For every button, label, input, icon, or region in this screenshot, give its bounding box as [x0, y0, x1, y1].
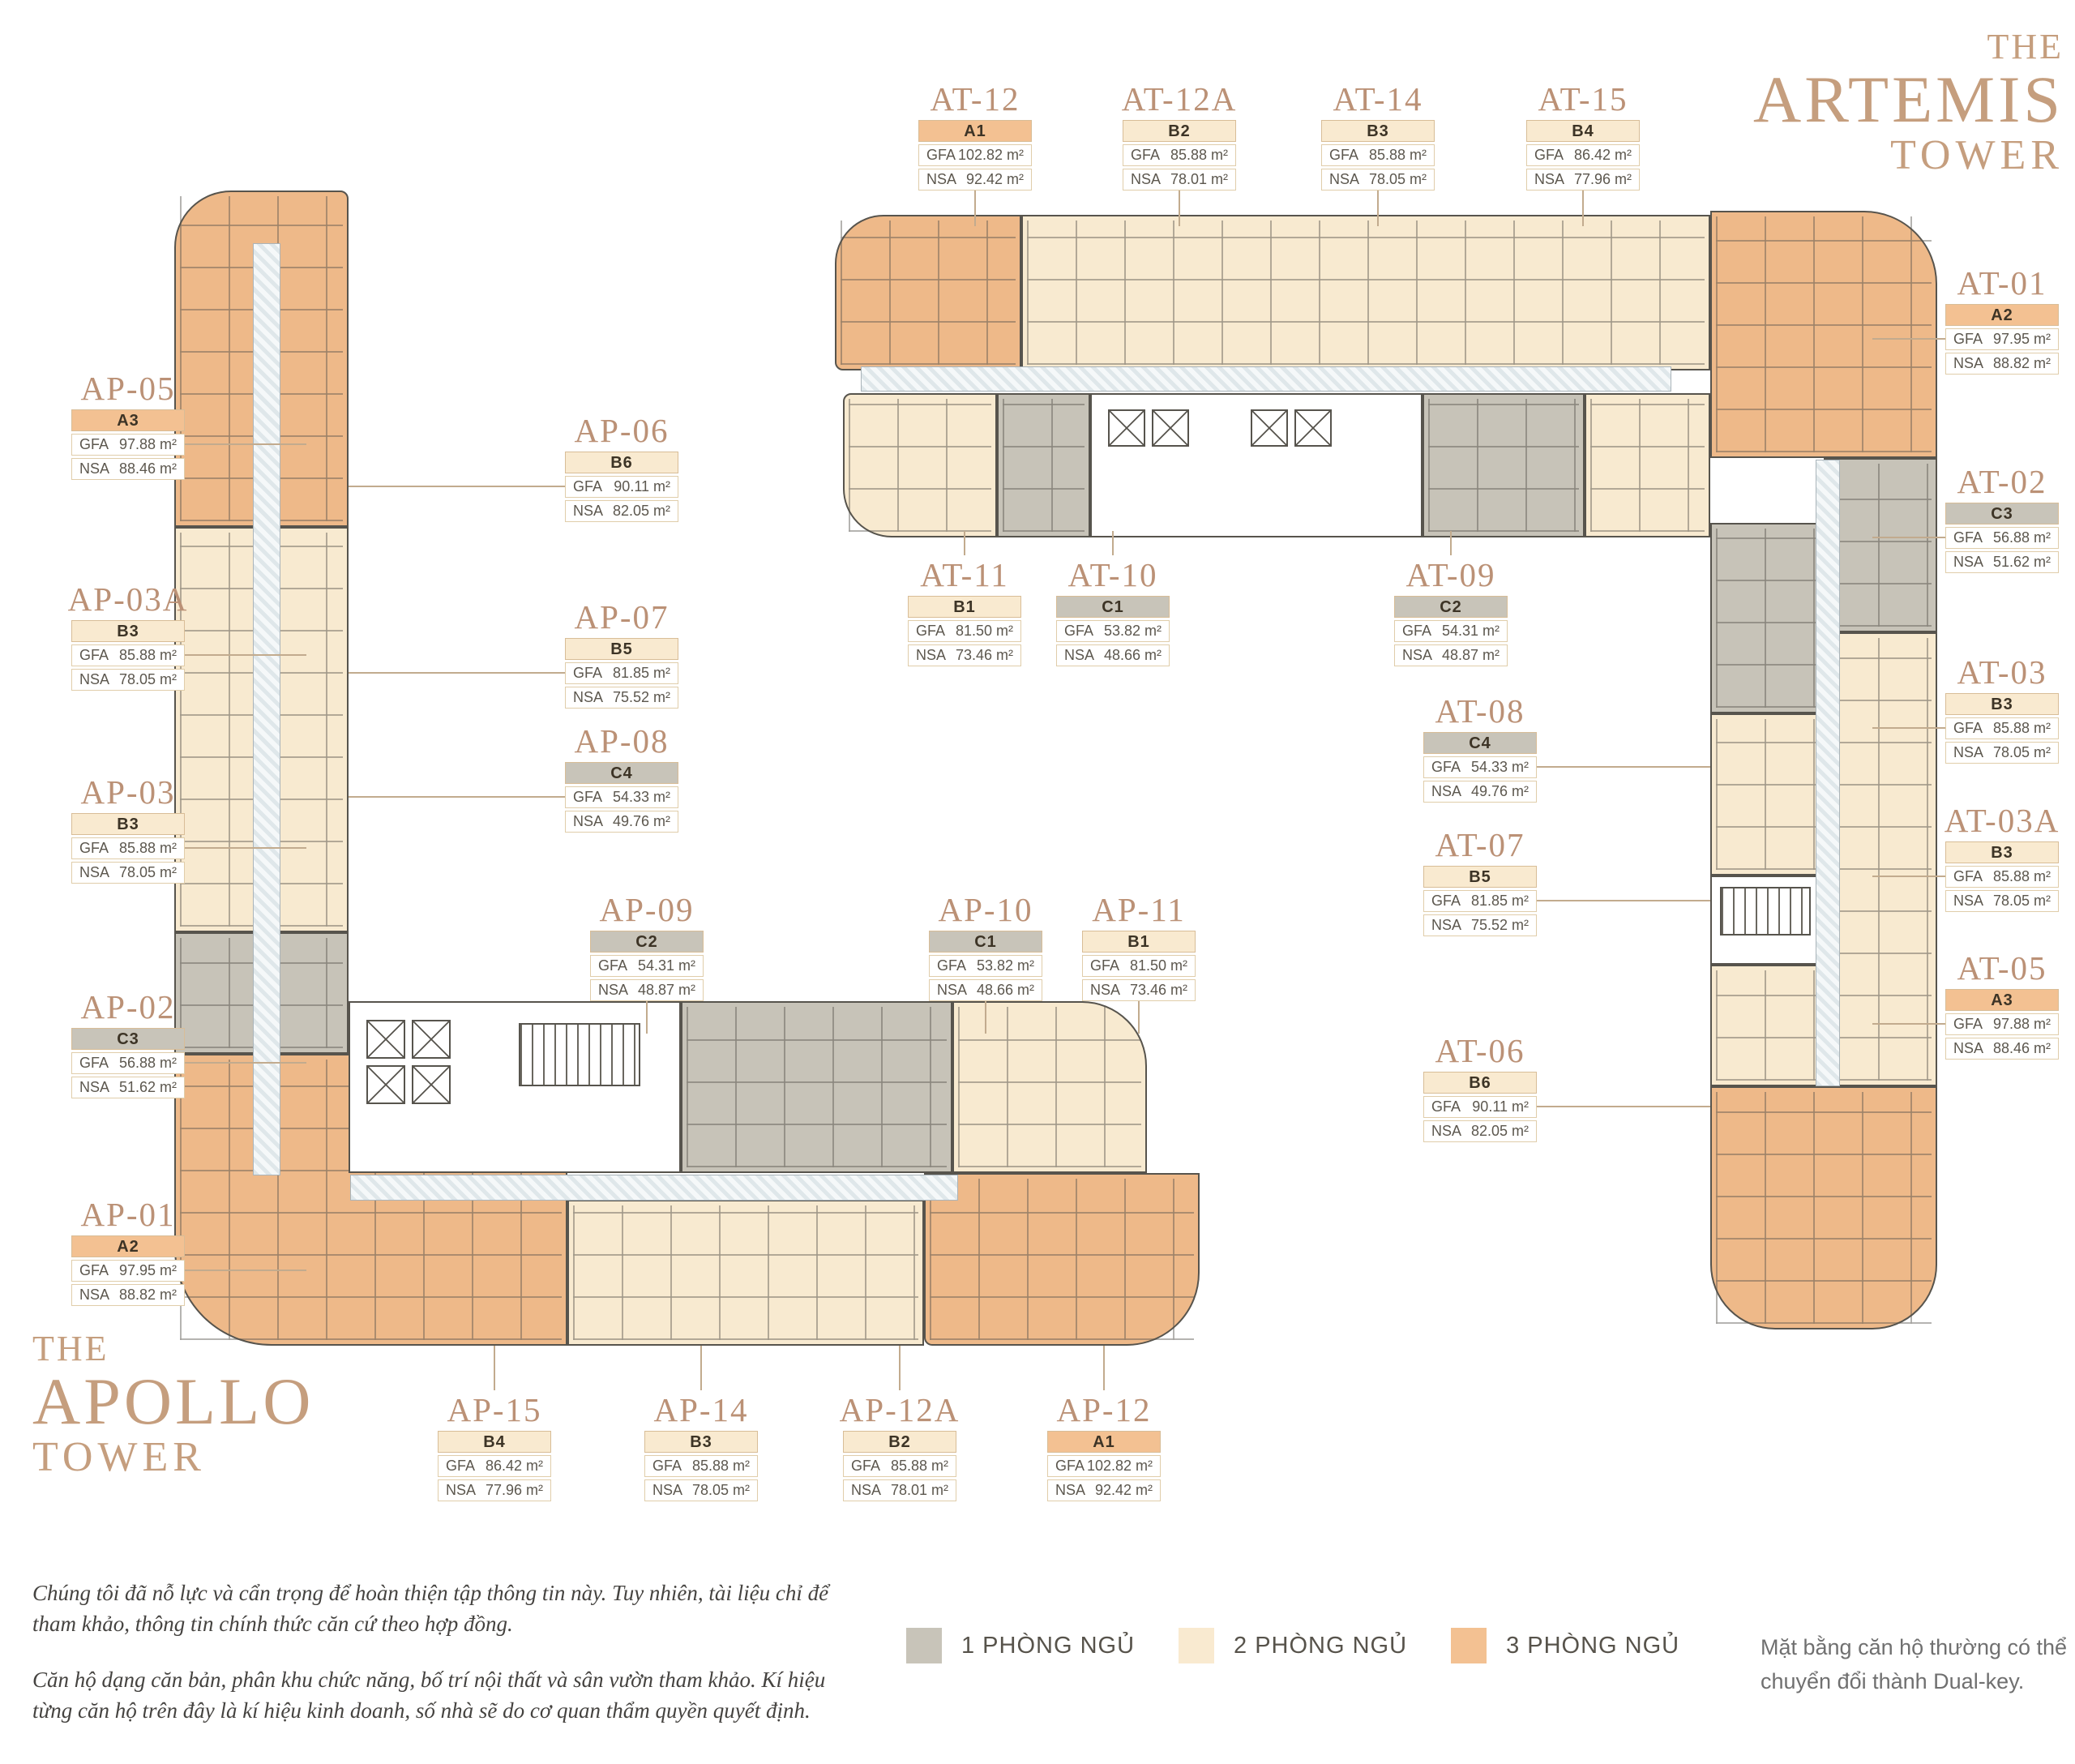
nsa-label: NSA — [573, 689, 603, 706]
unit-type-badge: B6 — [1423, 1072, 1537, 1094]
unit-callout-AP-02: AP-02C3GFA56.88 m²NSA51.62 m² — [71, 1028, 185, 1098]
gfa-label: GFA — [79, 436, 109, 453]
gfa-value: 102.82 m² — [1087, 1458, 1153, 1475]
unit-gfa-row: GFA97.95 m² — [1945, 328, 2059, 350]
unit-id: AP-12A — [840, 1390, 960, 1429]
unit-type-badge: A1 — [1047, 1431, 1161, 1453]
unit-id: AT-14 — [1333, 79, 1423, 118]
gfa-label: GFA — [937, 957, 966, 974]
nsa-label: NSA — [937, 982, 967, 999]
unit-id: AT-12A — [1122, 79, 1238, 118]
plan-block-3br — [1710, 211, 1937, 458]
nsa-value: 48.87 m² — [638, 982, 695, 999]
unit-nsa-row: NSA77.96 m² — [1526, 169, 1640, 191]
gfa-label: GFA — [916, 623, 945, 640]
artemis-title-the: THE — [1753, 29, 2064, 66]
legend-label: 3 PHÒNG NGỦ — [1506, 1633, 1679, 1659]
unit-gfa-row: GFA102.82 m² — [918, 144, 1032, 166]
gfa-value: 81.85 m² — [1471, 893, 1529, 910]
nsa-value: 49.76 m² — [1471, 783, 1529, 800]
gfa-value: 53.82 m² — [1104, 623, 1162, 640]
nsa-label: NSA — [1953, 744, 1983, 761]
unit-callout-AT-14: AT-14B3GFA85.88 m²NSA78.05 m² — [1321, 120, 1435, 191]
leader-line-AT-06 — [1537, 1106, 1710, 1107]
unit-gfa-row: GFA85.88 m² — [1945, 866, 2059, 888]
gfa-value: 54.31 m² — [638, 957, 695, 974]
nsa-value: 88.46 m² — [1993, 1040, 2051, 1057]
unit-nsa-row: NSA78.05 m² — [1945, 890, 2059, 912]
nsa-label: NSA — [79, 671, 109, 688]
unit-type-badge: B5 — [565, 638, 678, 660]
unit-callout-AT-06: AT-06B6GFA90.11 m²NSA82.05 m² — [1423, 1072, 1537, 1142]
nsa-value: 82.05 m² — [613, 503, 670, 520]
unit-nsa-row: NSA73.46 m² — [1082, 979, 1196, 1001]
unit-nsa-row: NSA78.05 m² — [71, 669, 185, 691]
plan-block-2br — [567, 1200, 924, 1346]
unit-gfa-row: GFA54.31 m² — [590, 955, 704, 977]
leader-line-AT-12A — [1179, 191, 1180, 226]
unit-gfa-row: GFA81.50 m² — [908, 620, 1021, 642]
elevator-shaft — [366, 1065, 405, 1104]
unit-callout-AP-01: AP-01A2GFA97.95 m²NSA88.82 m² — [71, 1235, 185, 1306]
nsa-label: NSA — [573, 503, 603, 520]
unit-gfa-row: GFA56.88 m² — [1945, 527, 2059, 549]
gfa-label: GFA — [573, 478, 602, 495]
unit-callout-AT-02: AT-02C3GFA56.88 m²NSA51.62 m² — [1945, 503, 2059, 573]
nsa-value: 78.05 m² — [1993, 744, 2051, 761]
unit-id: AT-08 — [1435, 691, 1525, 730]
unit-callout-AP-03: AP-03B3GFA85.88 m²NSA78.05 m² — [71, 813, 185, 884]
unit-id: AP-09 — [599, 890, 694, 929]
leader-line-AP-09 — [646, 1001, 648, 1034]
unit-nsa-row: NSA48.66 m² — [929, 979, 1042, 1001]
nsa-value: 78.01 m² — [891, 1482, 948, 1499]
legend-item-1br: 1 PHÒNG NGỦ — [906, 1628, 1135, 1663]
unit-nsa-row: NSA88.46 m² — [1945, 1038, 2059, 1060]
unit-type-badge: C2 — [590, 931, 704, 953]
leader-line-AP-02 — [185, 1062, 306, 1064]
unit-type-badge: B1 — [1082, 931, 1196, 953]
unit-id: AP-07 — [574, 597, 669, 636]
unit-nsa-row: NSA92.42 m² — [1047, 1479, 1161, 1501]
disclaimer-text: Chúng tôi đã nỗ lực và cẩn trọng để hoàn… — [32, 1578, 843, 1750]
gfa-value: 53.82 m² — [977, 957, 1034, 974]
legend-item-3br: 3 PHÒNG NGỦ — [1451, 1628, 1679, 1663]
unit-nsa-row: NSA78.05 m² — [1321, 169, 1435, 191]
gfa-value: 97.95 m² — [1993, 331, 2051, 348]
unit-nsa-row: NSA78.05 m² — [71, 862, 185, 884]
unit-id: AP-03A — [68, 580, 189, 619]
unit-id: AT-06 — [1435, 1031, 1525, 1070]
unit-id: AP-11 — [1092, 890, 1186, 929]
leader-line-AT-07 — [1537, 900, 1710, 901]
unit-id: AP-02 — [80, 987, 175, 1026]
nsa-value: 92.42 m² — [966, 171, 1024, 188]
unit-callout-AT-05: AT-05A3GFA97.88 m²NSA88.46 m² — [1945, 989, 2059, 1060]
plan-block-2br — [1710, 965, 1824, 1086]
gfa-value: 56.88 m² — [1993, 529, 2051, 546]
gfa-label: GFA — [1431, 1098, 1461, 1115]
gfa-label: GFA — [1090, 957, 1119, 974]
gfa-value: 81.50 m² — [1130, 957, 1187, 974]
unit-callout-AP-10: AP-10C1GFA53.82 m²NSA48.66 m² — [929, 931, 1042, 1001]
gfa-value: 97.95 m² — [119, 1262, 177, 1279]
unit-nsa-row: NSA51.62 m² — [1945, 551, 2059, 573]
plan-block-1br — [1710, 523, 1824, 713]
gfa-value: 54.33 m² — [1471, 759, 1529, 776]
unit-callout-AT-03: AT-03B3GFA85.88 m²NSA78.05 m² — [1945, 693, 2059, 764]
nsa-value: 75.52 m² — [1471, 917, 1529, 934]
gfa-value: 81.50 m² — [956, 623, 1013, 640]
unit-nsa-row: NSA75.52 m² — [565, 687, 678, 709]
leader-line-AT-11 — [964, 531, 965, 555]
gfa-label: GFA — [1953, 529, 1983, 546]
legend-swatch — [906, 1628, 942, 1663]
plan-block-2br — [1021, 215, 1710, 370]
gfa-label: GFA — [1431, 759, 1461, 776]
nsa-label: NSA — [1953, 1040, 1983, 1057]
gfa-label: GFA — [652, 1458, 682, 1475]
nsa-label: NSA — [446, 1482, 476, 1499]
unit-id: AP-10 — [938, 890, 1033, 929]
nsa-label: NSA — [573, 813, 603, 830]
corridor — [253, 243, 280, 1175]
unit-callout-AP-11: AP-11B1GFA81.50 m²NSA73.46 m² — [1082, 931, 1196, 1001]
unit-gfa-row: GFA86.42 m² — [1526, 144, 1640, 166]
unit-id: AP-15 — [447, 1390, 541, 1429]
gfa-value: 85.88 m² — [1993, 720, 2051, 737]
unit-type-badge: B5 — [1423, 866, 1537, 888]
legend-swatch — [1179, 1628, 1214, 1663]
unit-type-badge: C1 — [929, 931, 1042, 953]
leader-line-AT-12 — [974, 191, 976, 226]
unit-gfa-row: GFA81.85 m² — [565, 662, 678, 684]
stairs — [1720, 887, 1811, 936]
unit-gfa-row: GFA54.31 m² — [1394, 620, 1508, 642]
corridor — [1816, 460, 1840, 1086]
leader-line-AP-05 — [185, 443, 306, 445]
plan-block-3br — [835, 215, 1021, 370]
nsa-value: 48.66 m² — [1104, 647, 1162, 664]
stairs — [519, 1023, 640, 1086]
unit-nsa-row: NSA48.87 m² — [1394, 644, 1508, 666]
plan-block-1br — [681, 1001, 952, 1173]
unit-callout-AT-07: AT-07B5GFA81.85 m²NSA75.52 m² — [1423, 866, 1537, 936]
unit-type-badge: B1 — [908, 596, 1021, 618]
nsa-label: NSA — [851, 1482, 881, 1499]
dualkey-note: Mặt bằng căn hộ thường có thể chuyển đổi… — [1761, 1631, 2075, 1699]
gfa-label: GFA — [1431, 893, 1461, 910]
nsa-label: NSA — [1953, 554, 1983, 571]
gfa-label: GFA — [1953, 868, 1983, 885]
unit-nsa-row: NSA88.82 m² — [1945, 353, 2059, 375]
unit-callout-AT-15: AT-15B4GFA86.42 m²NSA77.96 m² — [1526, 120, 1640, 191]
nsa-value: 82.05 m² — [1471, 1123, 1529, 1140]
unit-gfa-row: GFA86.42 m² — [438, 1455, 551, 1477]
unit-callout-AP-09: AP-09C2GFA54.31 m²NSA48.87 m² — [590, 931, 704, 1001]
gfa-value: 54.33 m² — [613, 789, 670, 806]
artemis-tower-title: THE ARTEMIS TOWER — [1753, 29, 2064, 177]
unit-id: AP-01 — [80, 1195, 175, 1234]
nsa-value: 49.76 m² — [613, 813, 670, 830]
unit-type-badge: A2 — [1945, 304, 2059, 326]
nsa-value: 77.96 m² — [486, 1482, 543, 1499]
gfa-label: GFA — [79, 840, 109, 857]
leader-line-AP-14 — [700, 1346, 702, 1390]
gfa-label: GFA — [851, 1458, 880, 1475]
unit-callout-AT-10: AT-10C1GFA53.82 m²NSA48.66 m² — [1056, 596, 1170, 666]
gfa-label: GFA — [573, 665, 602, 682]
unit-type-badge: B4 — [438, 1431, 551, 1453]
unit-type-badge: B3 — [71, 813, 185, 835]
unit-gfa-row: GFA85.88 m² — [71, 644, 185, 666]
unit-gfa-row: GFA85.88 m² — [71, 837, 185, 859]
nsa-label: NSA — [79, 1079, 109, 1096]
unit-callout-AT-01: AT-01A2GFA97.95 m²NSA88.82 m² — [1945, 304, 2059, 375]
nsa-label: NSA — [1431, 1123, 1461, 1140]
leader-line-AP-03A — [185, 654, 306, 656]
unit-id: AT-11 — [920, 555, 1008, 594]
gfa-value: 97.88 m² — [1993, 1016, 2051, 1033]
plan-block-3br — [1710, 1086, 1937, 1329]
unit-id: AP-03 — [80, 773, 175, 811]
leader-line-AP-10 — [985, 1001, 986, 1034]
unit-callout-AT-03A: AT-03AB3GFA85.88 m²NSA78.05 m² — [1945, 841, 2059, 912]
plan-block-2br — [843, 393, 997, 537]
unit-callout-AP-03A: AP-03AB3GFA85.88 m²NSA78.05 m² — [71, 620, 185, 691]
leader-line-AP-12A — [899, 1346, 901, 1390]
leader-line-AT-02 — [1872, 537, 1945, 538]
unit-id: AP-05 — [80, 369, 175, 408]
unit-id: AP-06 — [574, 411, 669, 450]
leader-line-AT-15 — [1582, 191, 1584, 226]
artemis-title-name: ARTEMIS — [1753, 66, 2064, 134]
unit-callout-AT-09: AT-09C2GFA54.31 m²NSA48.87 m² — [1394, 596, 1508, 666]
nsa-value: 88.46 m² — [119, 460, 177, 477]
leader-line-AT-08 — [1537, 766, 1710, 768]
gfa-value: 85.88 m² — [1170, 147, 1228, 164]
nsa-value: 75.52 m² — [613, 689, 670, 706]
nsa-label: NSA — [79, 460, 109, 477]
leader-line-AT-09 — [1450, 531, 1452, 555]
gfa-label: GFA — [1402, 623, 1431, 640]
unit-type-badge: C4 — [1423, 732, 1537, 754]
apollo-title-tower: TOWER — [32, 1436, 314, 1479]
nsa-label: NSA — [1953, 355, 1983, 372]
unit-nsa-row: NSA88.82 m² — [71, 1284, 185, 1306]
leader-line-AT-14 — [1377, 191, 1379, 226]
gfa-value: 102.82 m² — [958, 147, 1024, 164]
unit-gfa-row: GFA53.82 m² — [1056, 620, 1170, 642]
leader-line-AT-01 — [1872, 338, 1945, 340]
nsa-label: NSA — [926, 171, 956, 188]
nsa-label: NSA — [1329, 171, 1359, 188]
nsa-label: NSA — [1402, 647, 1432, 664]
nsa-value: 78.01 m² — [1170, 171, 1228, 188]
unit-type-badge: B2 — [843, 1431, 956, 1453]
gfa-value: 85.88 m² — [119, 647, 177, 664]
unit-callout-AP-12A: AP-12AB2GFA85.88 m²NSA78.01 m² — [843, 1431, 956, 1501]
leader-line-AP-07 — [349, 672, 565, 674]
unit-type-badge: C4 — [565, 762, 678, 784]
gfa-value: 86.42 m² — [1574, 147, 1632, 164]
unit-id: AT-12 — [931, 79, 1020, 118]
unit-nsa-row: NSA82.05 m² — [1423, 1120, 1537, 1142]
gfa-value: 86.42 m² — [486, 1458, 543, 1475]
plan-block-2br — [1585, 393, 1710, 537]
gfa-value: 85.88 m² — [1993, 868, 2051, 885]
unit-nsa-row: NSA78.01 m² — [843, 1479, 956, 1501]
gfa-value: 56.88 m² — [119, 1055, 177, 1072]
gfa-label: GFA — [1329, 147, 1358, 164]
leader-line-AP-12 — [1103, 1346, 1105, 1390]
elevator-shaft — [1108, 409, 1145, 447]
nsa-value: 78.05 m² — [119, 671, 177, 688]
gfa-label: GFA — [79, 647, 109, 664]
unit-callout-AP-08: AP-08C4GFA54.33 m²NSA49.76 m² — [565, 762, 678, 833]
unit-callout-AP-15: AP-15B4GFA86.42 m²NSA77.96 m² — [438, 1431, 551, 1501]
legend-item-2br: 2 PHÒNG NGỦ — [1179, 1628, 1407, 1663]
gfa-label: GFA — [573, 789, 602, 806]
unit-gfa-row: GFA97.88 m² — [71, 434, 185, 456]
unit-type-badge: A3 — [1945, 989, 2059, 1011]
gfa-label: GFA — [1131, 147, 1160, 164]
nsa-label: NSA — [1064, 647, 1094, 664]
unit-type-badge: B4 — [1526, 120, 1640, 142]
nsa-value: 78.05 m² — [1993, 893, 2051, 910]
gfa-label: GFA — [446, 1458, 475, 1475]
floorplan-page: THE ARTEMIS TOWER THE APOLLO TOWER — [0, 0, 2075, 1764]
unit-nsa-row: NSA77.96 m² — [438, 1479, 551, 1501]
nsa-label: NSA — [598, 982, 628, 999]
gfa-value: 90.11 m² — [614, 478, 670, 495]
nsa-value: 73.46 m² — [1130, 982, 1187, 999]
nsa-value: 48.66 m² — [977, 982, 1034, 999]
bedroom-legend: 1 PHÒNG NGỦ2 PHÒNG NGỦ3 PHÒNG NGỦ — [906, 1628, 1723, 1663]
apollo-title-name: APOLLO — [32, 1368, 314, 1436]
unit-gfa-row: GFA85.88 m² — [1123, 144, 1236, 166]
gfa-label: GFA — [1953, 1016, 1983, 1033]
unit-callout-AT-11: AT-11B1GFA81.50 m²NSA73.46 m² — [908, 596, 1021, 666]
unit-id: AT-01 — [1957, 263, 2047, 302]
nsa-label: NSA — [916, 647, 946, 664]
unit-nsa-row: NSA78.05 m² — [1945, 742, 2059, 764]
gfa-value: 85.88 m² — [119, 840, 177, 857]
elevator-shaft — [366, 1020, 405, 1059]
unit-gfa-row: GFA53.82 m² — [929, 955, 1042, 977]
nsa-label: NSA — [1090, 982, 1120, 999]
gfa-value: 97.88 m² — [119, 436, 177, 453]
gfa-label: GFA — [1055, 1458, 1085, 1475]
unit-nsa-row: NSA82.05 m² — [565, 500, 678, 522]
legend-label: 2 PHÒNG NGỦ — [1234, 1633, 1407, 1659]
gfa-label: GFA — [926, 147, 956, 164]
plan-block-2br — [952, 1001, 1147, 1173]
corridor — [350, 1175, 958, 1201]
unit-gfa-row: GFA85.88 m² — [1321, 144, 1435, 166]
unit-type-badge: C3 — [1945, 503, 2059, 524]
unit-id: AT-15 — [1538, 79, 1628, 118]
gfa-value: 85.88 m² — [1369, 147, 1427, 164]
unit-id: AP-08 — [574, 721, 669, 760]
unit-id: AT-07 — [1435, 825, 1525, 864]
plan-block-1br — [997, 393, 1090, 537]
plan-block-2br — [1710, 713, 1824, 876]
unit-callout-AT-12A: AT-12AB2GFA85.88 m²NSA78.01 m² — [1123, 120, 1236, 191]
unit-type-badge: B3 — [644, 1431, 758, 1453]
unit-gfa-row: GFA81.50 m² — [1082, 955, 1196, 977]
nsa-label: NSA — [1055, 1482, 1085, 1499]
unit-gfa-row: GFA54.33 m² — [565, 786, 678, 808]
unit-nsa-row: NSA51.62 m² — [71, 1077, 185, 1098]
unit-type-badge: B3 — [1945, 841, 2059, 863]
unit-id: AP-14 — [653, 1390, 748, 1429]
unit-type-badge: C3 — [71, 1028, 185, 1050]
elevator-shaft — [412, 1065, 451, 1104]
nsa-label: NSA — [1431, 783, 1461, 800]
leader-line-AP-08 — [349, 796, 565, 798]
unit-callout-AP-07: AP-07B5GFA81.85 m²NSA75.52 m² — [565, 638, 678, 709]
plan-block-3br — [924, 1173, 1200, 1346]
plan-block-1br — [1423, 393, 1585, 537]
unit-gfa-row: GFA81.85 m² — [1423, 890, 1537, 912]
unit-nsa-row: NSA49.76 m² — [565, 811, 678, 833]
legend-label: 1 PHÒNG NGỦ — [961, 1633, 1135, 1659]
unit-type-badge: C1 — [1056, 596, 1170, 618]
leader-line-AP-01 — [185, 1269, 306, 1271]
unit-callout-AP-05: AP-05A3GFA97.88 m²NSA88.46 m² — [71, 409, 185, 480]
leader-line-AT-10 — [1112, 531, 1114, 555]
unit-id: AT-02 — [1957, 462, 2047, 501]
unit-gfa-row: GFA85.88 m² — [644, 1455, 758, 1477]
elevator-shaft — [1152, 409, 1189, 447]
gfa-label: GFA — [79, 1262, 109, 1279]
unit-type-badge: A2 — [71, 1235, 185, 1257]
leader-line-AT-03A — [1872, 876, 1945, 877]
nsa-label: NSA — [1431, 917, 1461, 934]
unit-nsa-row: NSA75.52 m² — [1423, 914, 1537, 936]
gfa-label: GFA — [1534, 147, 1564, 164]
leader-line-AT-05 — [1872, 1023, 1945, 1025]
disclaimer-paragraph-1: Chúng tôi đã nỗ lực và cẩn trọng để hoàn… — [32, 1578, 843, 1640]
unit-id: AT-03 — [1957, 653, 2047, 691]
nsa-value: 48.87 m² — [1442, 647, 1500, 664]
unit-callout-AP-06: AP-06B6GFA90.11 m²NSA82.05 m² — [565, 452, 678, 522]
nsa-label: NSA — [1131, 171, 1161, 188]
leader-line-AT-03 — [1872, 727, 1945, 729]
nsa-label: NSA — [79, 864, 109, 881]
unit-nsa-row: NSA48.66 m² — [1056, 644, 1170, 666]
unit-nsa-row: NSA73.46 m² — [908, 644, 1021, 666]
unit-nsa-row: NSA78.05 m² — [644, 1479, 758, 1501]
unit-id: AT-09 — [1406, 555, 1496, 594]
unit-gfa-row: GFA97.95 m² — [71, 1260, 185, 1282]
unit-gfa-row: GFA85.88 m² — [843, 1455, 956, 1477]
unit-nsa-row: NSA49.76 m² — [1423, 781, 1537, 803]
gfa-label: GFA — [598, 957, 627, 974]
unit-id: AT-10 — [1068, 555, 1158, 594]
corridor — [861, 366, 1671, 392]
plan-block-2br — [1824, 632, 1937, 1086]
gfa-label: GFA — [79, 1055, 109, 1072]
gfa-label: GFA — [1953, 720, 1983, 737]
gfa-value: 90.11 m² — [1472, 1098, 1529, 1115]
unit-type-badge: A1 — [918, 120, 1032, 142]
nsa-label: NSA — [1534, 171, 1564, 188]
unit-callout-AT-12: AT-12A1GFA102.82 m²NSA92.42 m² — [918, 120, 1032, 191]
unit-type-badge: B3 — [1321, 120, 1435, 142]
leader-line-AP-15 — [494, 1346, 495, 1390]
